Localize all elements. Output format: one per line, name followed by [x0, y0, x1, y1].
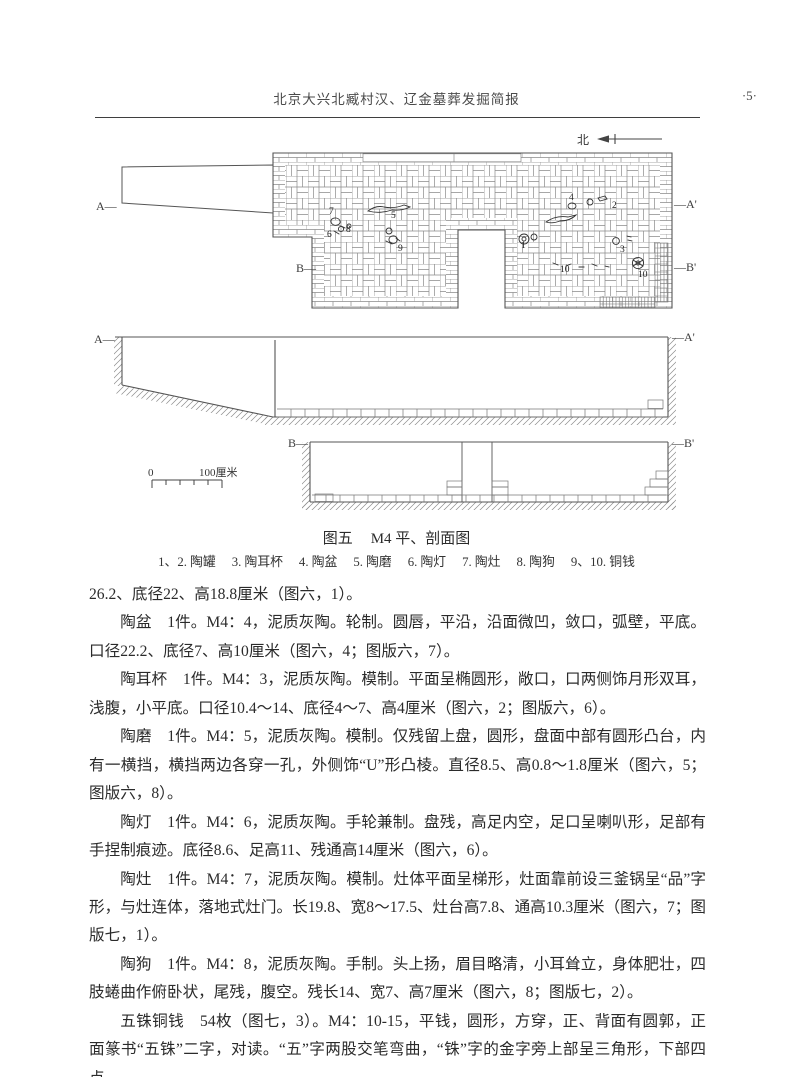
artifact-number: 1 — [521, 241, 526, 251]
paragraph: 陶灯 1件。M4：6，泥质灰陶。手轮兼制。盘残，高足内空，足口呈喇叭形，足部有手… — [89, 809, 706, 866]
paragraph: 陶磨 1件。M4：5，泥质灰陶。模制。仅残留上盘，圆形，盘面中部有圆形凸台，内有… — [89, 723, 706, 808]
artifact-number: 10 — [638, 270, 648, 280]
artifact-number: 8 — [346, 225, 351, 235]
figure-legend: 1、2. 陶罐3. 陶耳杯4. 陶盆5. 陶磨6. 陶灯7. 陶灶8. 陶狗9、… — [0, 551, 793, 570]
figure-caption-title: M4 平、剖面图 — [371, 531, 471, 547]
section-aa: A— —A' — [94, 330, 695, 425]
section-aa-right: —A' — [671, 330, 695, 344]
artifact-number: 9 — [398, 244, 403, 254]
section-aa-left: A— — [94, 332, 116, 346]
legend-item: 1、2. 陶罐 — [158, 555, 216, 569]
article-body: 26.2、底径22、高18.8厘米（图六，1）。陶盆 1件。M4：4，泥质灰陶。… — [89, 581, 706, 1077]
legend-item: 7. 陶灶 — [462, 555, 500, 569]
legend-item: 8. 陶狗 — [516, 555, 554, 569]
artifact-number: 10 — [560, 265, 570, 275]
artifact-number: 7 — [329, 207, 334, 217]
legend-item: 6. 陶灯 — [408, 555, 446, 569]
paragraph: 陶狗 1件。M4：8，泥质灰陶。手制。头上扬，眉目略清，小耳耸立，身体肥壮，四肢… — [89, 951, 706, 1008]
figure-five-drawing: 北 — [0, 125, 793, 520]
page-number: ·5· — [742, 88, 757, 104]
paragraph: 26.2、底径22、高18.8厘米（图六，1）。 — [89, 581, 706, 609]
artifact-number: 6 — [327, 230, 332, 240]
entry-ramp — [122, 165, 273, 213]
header-rule — [95, 117, 700, 118]
figure-caption: 图五M4 平、剖面图 — [0, 527, 793, 548]
legend-item: 5. 陶磨 — [353, 555, 391, 569]
artifact-number: 5 — [391, 211, 396, 221]
section-bb-left: B— — [288, 436, 309, 450]
legend-item: 9、10. 铜钱 — [571, 555, 635, 569]
paragraph: 陶盆 1件。M4：4，泥质灰陶。轮制。圆唇，平沿，沿面微凹，敛口，弧壁，平底。口… — [89, 609, 706, 666]
scale-bar: 0 100厘米 — [148, 466, 238, 488]
north-label: 北 — [577, 133, 589, 147]
plan-label-a: A— — [96, 199, 118, 213]
legend-item: 4. 陶盆 — [299, 555, 337, 569]
artifact-number: 2 — [612, 201, 617, 211]
tomb-plan-view: A— —A' B— —B' 7685942131010 — [96, 153, 697, 308]
plan-label-b2: —B' — [673, 260, 696, 274]
plan-label-b: B— — [296, 261, 317, 275]
section-bb-right: —B' — [671, 436, 694, 450]
scale-start: 0 — [148, 467, 154, 479]
artifact-number: 4 — [569, 193, 574, 203]
plan-label-a2: —A' — [673, 197, 697, 211]
figure-caption-label: 图五 — [323, 531, 353, 547]
section-bb: B— —B' — [288, 436, 694, 510]
scale-end: 100厘米 — [199, 466, 238, 479]
document-page: 北京大兴北臧村汉、辽金墓葬发掘简报 ·5· 北 — [0, 0, 793, 1077]
legend-item: 3. 陶耳杯 — [232, 555, 283, 569]
page-header-title: 北京大兴北臧村汉、辽金墓葬发掘简报 — [0, 88, 793, 108]
paragraph: 五铢铜钱 54枚（图七，3）。M4：10-15，平钱，圆形，方穿，正、背面有圆郭… — [89, 1008, 706, 1077]
north-arrow-icon: 北 — [577, 133, 662, 147]
paragraph: 陶灶 1件。M4：7，泥质灰陶。模制。灶体平面呈梯形，灶面靠前设三釜锅呈“品”字… — [89, 866, 706, 951]
artifact-number: 3 — [620, 245, 625, 255]
paragraph: 陶耳杯 1件。M4：3，泥质灰陶。模制。平面呈椭圆形，敞口，口两侧饰月形双耳，浅… — [89, 666, 706, 723]
